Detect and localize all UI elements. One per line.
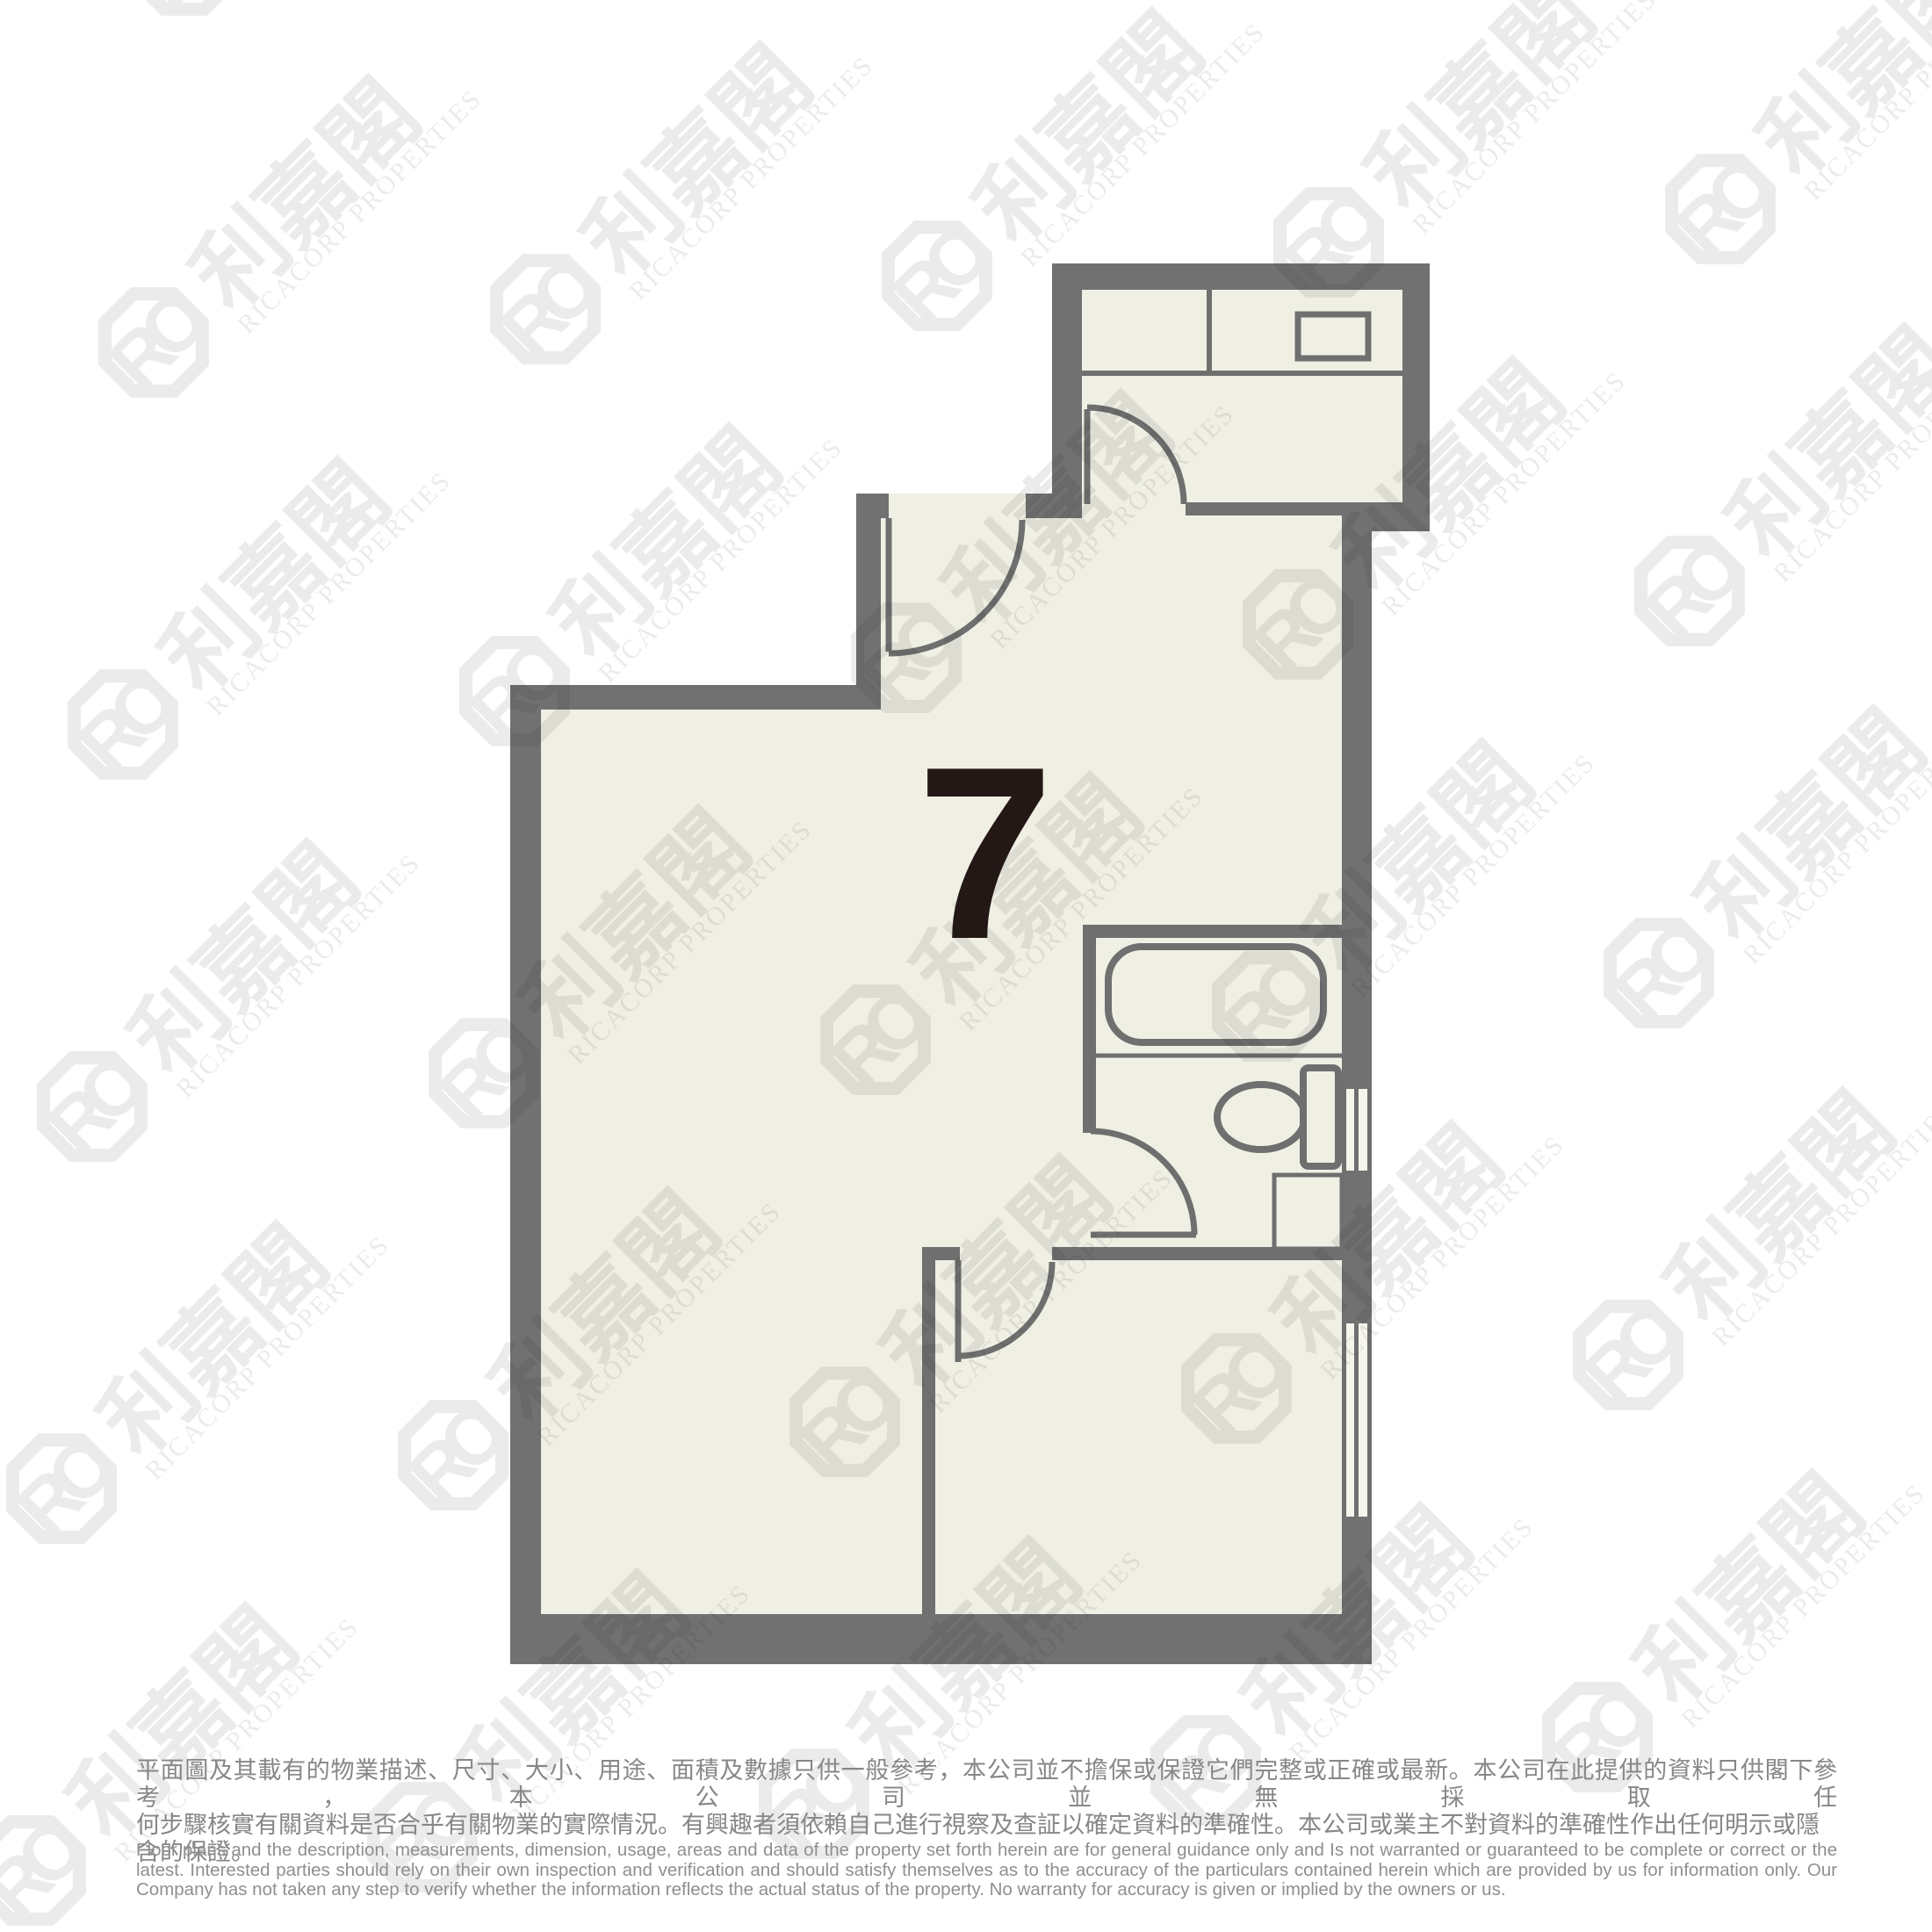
disclaimer-line: Company has not taken any step to verify… bbox=[136, 1880, 1837, 1900]
kitchen-bottom-wall bbox=[1186, 502, 1370, 515]
watermark-unit bbox=[116, 0, 519, 43]
disclaimer-line: latest. Interested parties should rely o… bbox=[136, 1861, 1837, 1881]
watermark-unit bbox=[1560, 1034, 1932, 1438]
window-line bbox=[1354, 1089, 1359, 1171]
bathroom-left-wall bbox=[1083, 925, 1096, 1133]
watermark-unit bbox=[1590, 652, 1932, 1056]
window-line bbox=[1342, 1089, 1346, 1171]
watermark-layer bbox=[0, 0, 1932, 1932]
toilet-icon bbox=[1217, 1085, 1305, 1150]
toilet-tank-icon bbox=[1303, 1068, 1338, 1166]
watermark-unit bbox=[1260, 0, 1663, 325]
watermark-unit bbox=[0, 1168, 395, 1571]
watermark-unit bbox=[1621, 270, 1932, 674]
disclaimer-line: 平面圖及其載有的物業描述、尺寸、大小、用途、面積及數據只供一般參考，本公司並不擔… bbox=[136, 1757, 1837, 1812]
disclaimer-english: Floor plans and the description, measure… bbox=[136, 1841, 1837, 1900]
window-line bbox=[1367, 1089, 1372, 1171]
watermark-unit bbox=[85, 22, 488, 425]
watermark-unit bbox=[1652, 0, 1932, 292]
disclaimer-line: Floor plans and the description, measure… bbox=[136, 1841, 1837, 1861]
left-wall bbox=[510, 685, 541, 1664]
watermark-unit bbox=[54, 404, 458, 807]
watermark-unit bbox=[508, 0, 911, 10]
floor-plan-svg: RC 利嘉閣 RICACORP PROPERTIES bbox=[0, 0, 1932, 1932]
watermark-unit bbox=[24, 786, 427, 1189]
floor-plan-page: RC 利嘉閣 RICACORP PROPERTIES bbox=[0, 0, 1932, 1932]
watermark-unit bbox=[477, 0, 880, 392]
